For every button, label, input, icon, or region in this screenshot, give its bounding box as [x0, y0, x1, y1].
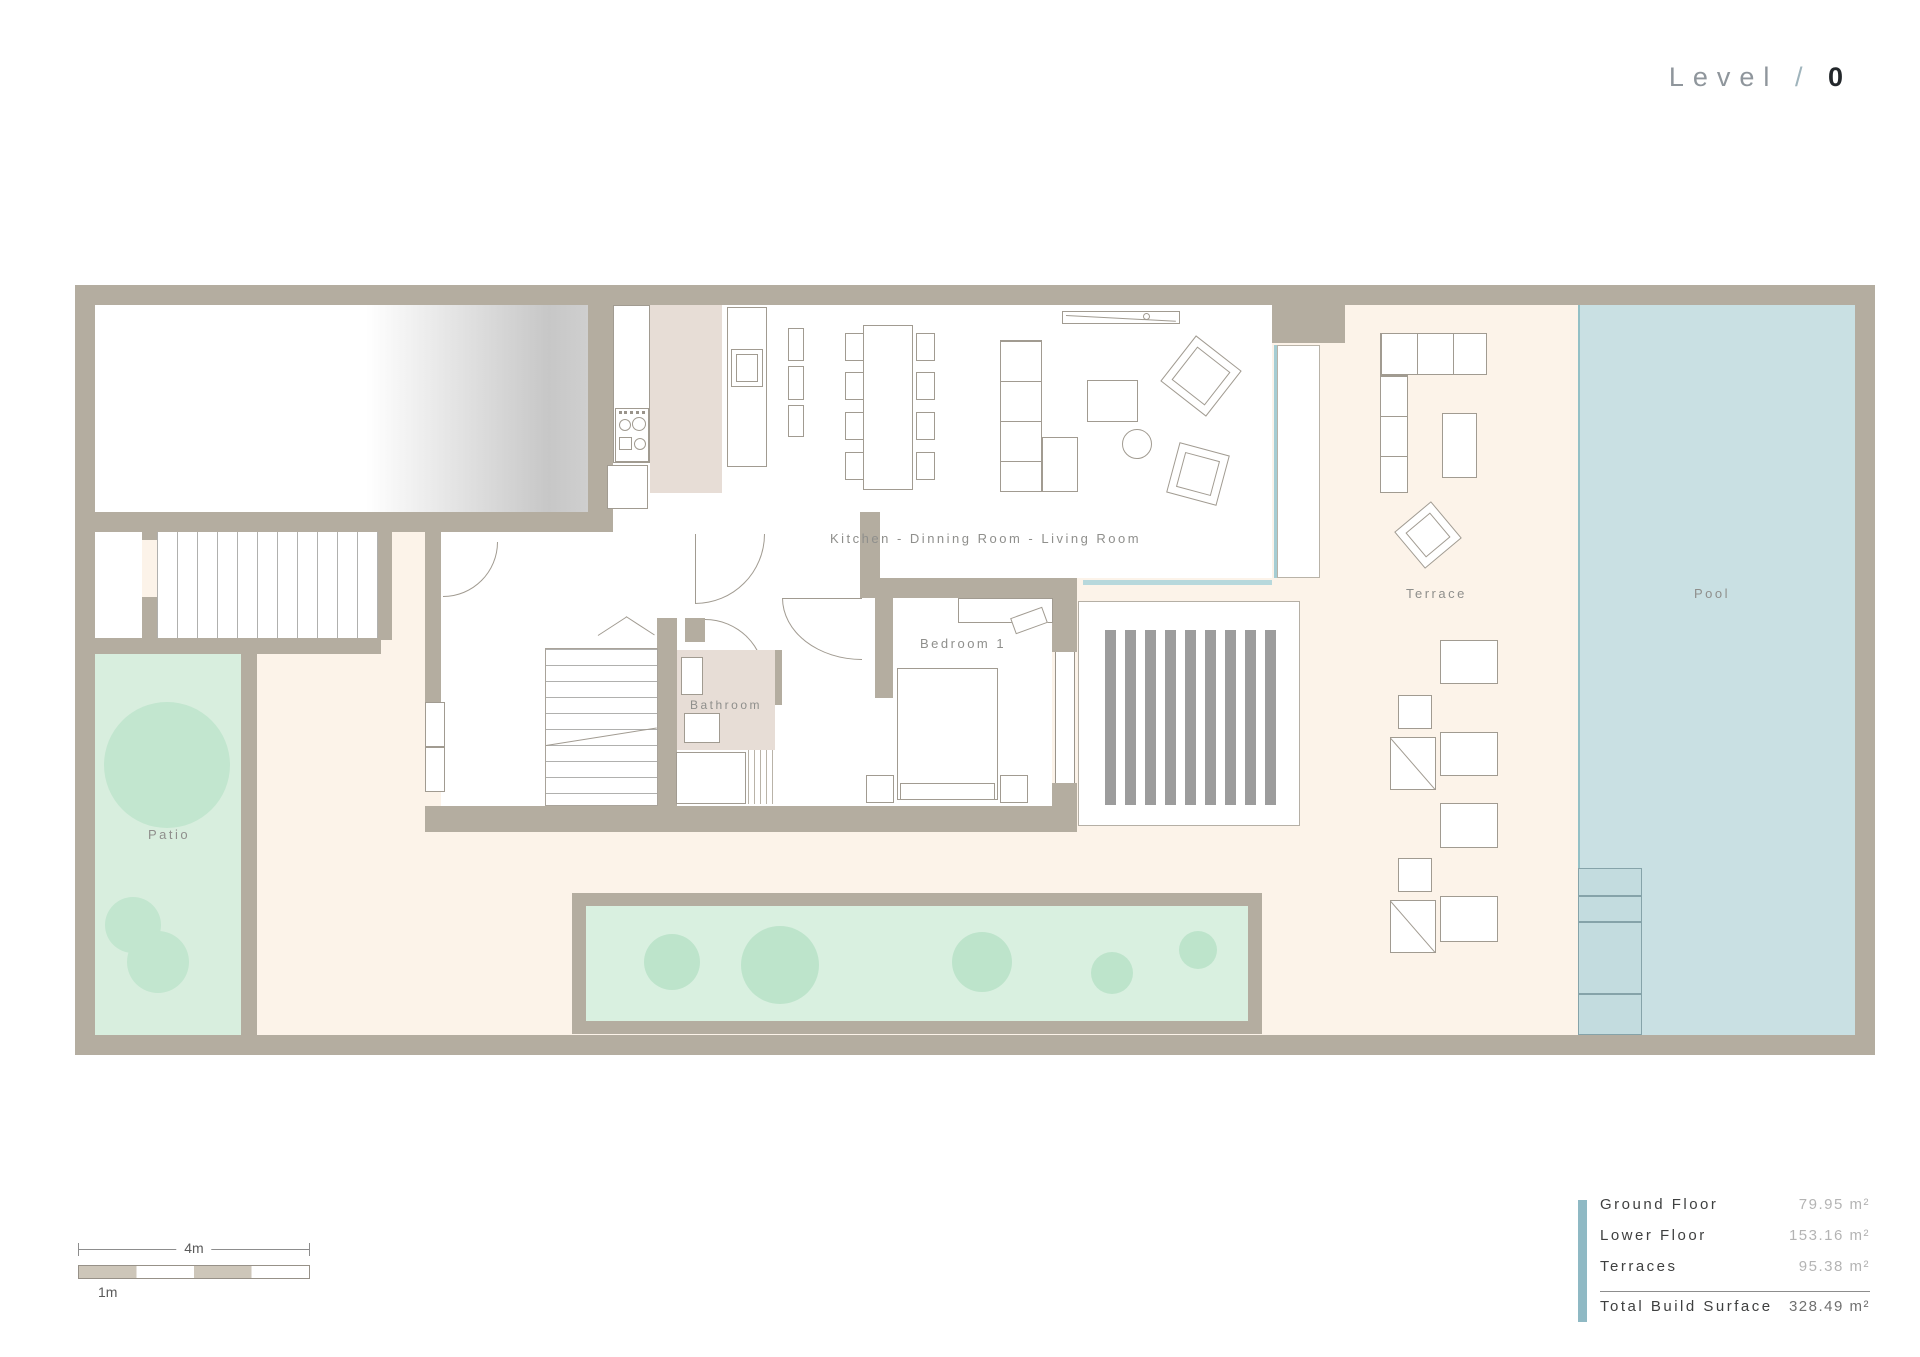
kitchen-floor — [650, 305, 722, 493]
sink-basin — [736, 354, 758, 382]
bar-stool — [788, 405, 804, 437]
bush — [1091, 952, 1133, 994]
armchair-seat — [1172, 347, 1231, 406]
hall-closet — [425, 747, 445, 792]
scale-unit-label: 1m — [98, 1284, 117, 1300]
entry-bottom-wall — [93, 638, 381, 654]
pool-step — [1578, 994, 1642, 1035]
hall-left-wall — [425, 532, 441, 702]
bush — [1179, 931, 1217, 969]
dining-chair — [845, 333, 864, 361]
outdoor-chair-seat — [1405, 512, 1450, 557]
bathroom-label: Bathroom — [690, 698, 762, 712]
bush — [644, 934, 700, 990]
sideboard-knob — [1143, 313, 1150, 320]
bedroom-right-wall — [1052, 578, 1077, 652]
sideboard-detail — [1066, 315, 1176, 322]
kitchen-cabinet — [607, 465, 648, 509]
shower-drain — [748, 750, 774, 804]
hall-closet — [425, 702, 445, 747]
legend-row: Ground Floor 79.95 m² — [1600, 1196, 1870, 1227]
sun-lounger — [1440, 732, 1498, 776]
sofa — [1000, 340, 1042, 492]
outdoor-table — [1442, 413, 1477, 478]
side-table — [1398, 858, 1432, 892]
outdoor-sofa — [1380, 333, 1487, 375]
side-table-round — [1122, 429, 1152, 459]
bush — [127, 931, 189, 993]
coffee-table — [1087, 380, 1138, 422]
stove — [615, 408, 649, 462]
floor-plan-page: Level / 0 — [0, 0, 1920, 1357]
entry-stairs — [157, 532, 378, 638]
dining-chair — [845, 372, 864, 400]
pergola-stripes — [1105, 630, 1280, 805]
legend-value: 95.38 m² — [1799, 1258, 1870, 1275]
area-legend: Ground Floor 79.95 m² Lower Floor 153.16… — [1578, 1196, 1870, 1329]
pool-label: Pool — [1694, 586, 1730, 601]
level-separator: / — [1795, 62, 1812, 92]
dining-table — [863, 325, 913, 490]
interior-stairs — [545, 648, 658, 806]
burner — [634, 438, 646, 450]
shower — [676, 752, 746, 804]
pool-step — [1578, 896, 1642, 922]
scale-total-label: 4m — [176, 1240, 211, 1256]
armchair-seat — [1176, 452, 1220, 496]
level-title: Level / 0 — [1669, 62, 1852, 93]
bush — [741, 926, 819, 1004]
legend-value: 79.95 m² — [1799, 1196, 1870, 1213]
bush — [952, 932, 1012, 992]
bar-stool — [788, 328, 804, 361]
house-bottom-wall — [425, 806, 1077, 832]
patio-wall — [241, 652, 257, 1035]
side-table — [1398, 695, 1432, 729]
scale-segments — [78, 1265, 310, 1279]
legend-value: 153.16 m² — [1789, 1227, 1870, 1244]
fold-line — [1390, 901, 1435, 953]
sun-lounger — [1440, 640, 1498, 684]
legend-total-value: 328.49 m² — [1789, 1298, 1870, 1315]
outdoor-sofa — [1380, 375, 1408, 493]
sun-lounger — [1440, 896, 1498, 942]
folding-lounger — [1390, 900, 1436, 953]
tv-sideboard — [1062, 311, 1180, 324]
bedroom-window — [1055, 652, 1075, 783]
legend-label: Ground Floor — [1600, 1196, 1718, 1213]
legend-label: Lower Floor — [1600, 1227, 1707, 1244]
bedroom-left-wall — [875, 598, 893, 698]
bed — [897, 668, 998, 800]
dining-chair — [916, 412, 935, 440]
entry-wall-stub — [142, 532, 157, 540]
legend-total-label: Total Build Surface — [1600, 1298, 1773, 1315]
dining-chair — [916, 333, 935, 361]
stove-knobs — [619, 411, 645, 414]
entry-room — [95, 532, 142, 638]
legend-row: Lower Floor 153.16 m² — [1600, 1227, 1870, 1258]
site-wall-right — [1855, 285, 1875, 1055]
wall-stub — [685, 618, 705, 642]
sink — [731, 349, 763, 387]
site-wall-top — [75, 285, 1875, 305]
fold-line — [1390, 738, 1435, 790]
bedroom-label: Bedroom 1 — [920, 636, 1006, 651]
burner — [619, 437, 632, 450]
sun-lounger — [1440, 803, 1498, 848]
level-word: Level — [1669, 62, 1779, 92]
dining-chair — [916, 372, 935, 400]
legend-divider — [1600, 1291, 1870, 1292]
scale-tick — [78, 1243, 79, 1256]
dining-chair — [845, 412, 864, 440]
scale-bar: 4m 1m — [78, 1238, 310, 1302]
burner — [619, 419, 631, 431]
kitchen-living-label: Kitchen - Dinning Room - Living Room — [830, 531, 1141, 546]
site-wall-left — [75, 285, 95, 1055]
garage-bottom-wall — [75, 512, 695, 532]
legend-row: Terraces 95.38 m² — [1600, 1258, 1870, 1289]
stairs-side-wall — [378, 532, 392, 640]
garage — [95, 305, 588, 512]
patio-label: Patio — [148, 827, 190, 842]
site-wall-bottom — [75, 1035, 1875, 1055]
deck-window-band — [1083, 580, 1272, 585]
nightstand — [1000, 775, 1028, 803]
terrace-label: Terrace — [1406, 586, 1467, 601]
level-number: 0 — [1828, 62, 1852, 92]
sofa-chaise — [1042, 437, 1078, 492]
stairs-wall — [657, 618, 677, 806]
scale-tick — [309, 1243, 310, 1256]
legend-accent-bar — [1578, 1200, 1587, 1322]
bar-stool — [788, 366, 804, 400]
bed-bench — [900, 783, 995, 800]
dining-chair — [845, 452, 864, 480]
kitchen-island — [727, 307, 767, 467]
folding-lounger — [1390, 737, 1436, 790]
dining-chair — [916, 452, 935, 480]
legend-total-row: Total Build Surface 328.49 m² — [1600, 1298, 1870, 1329]
legend-label: Terraces — [1600, 1258, 1678, 1275]
entry-wall-stub — [142, 597, 157, 638]
burner — [632, 417, 646, 431]
tree — [104, 702, 230, 828]
bedroom-top-wall — [860, 578, 1055, 598]
nightstand — [866, 775, 894, 803]
pool-step — [1578, 922, 1642, 994]
toilet — [684, 713, 720, 743]
terrace-sill — [1277, 345, 1320, 578]
bathroom-sink — [681, 657, 703, 695]
pool-step — [1578, 868, 1642, 896]
